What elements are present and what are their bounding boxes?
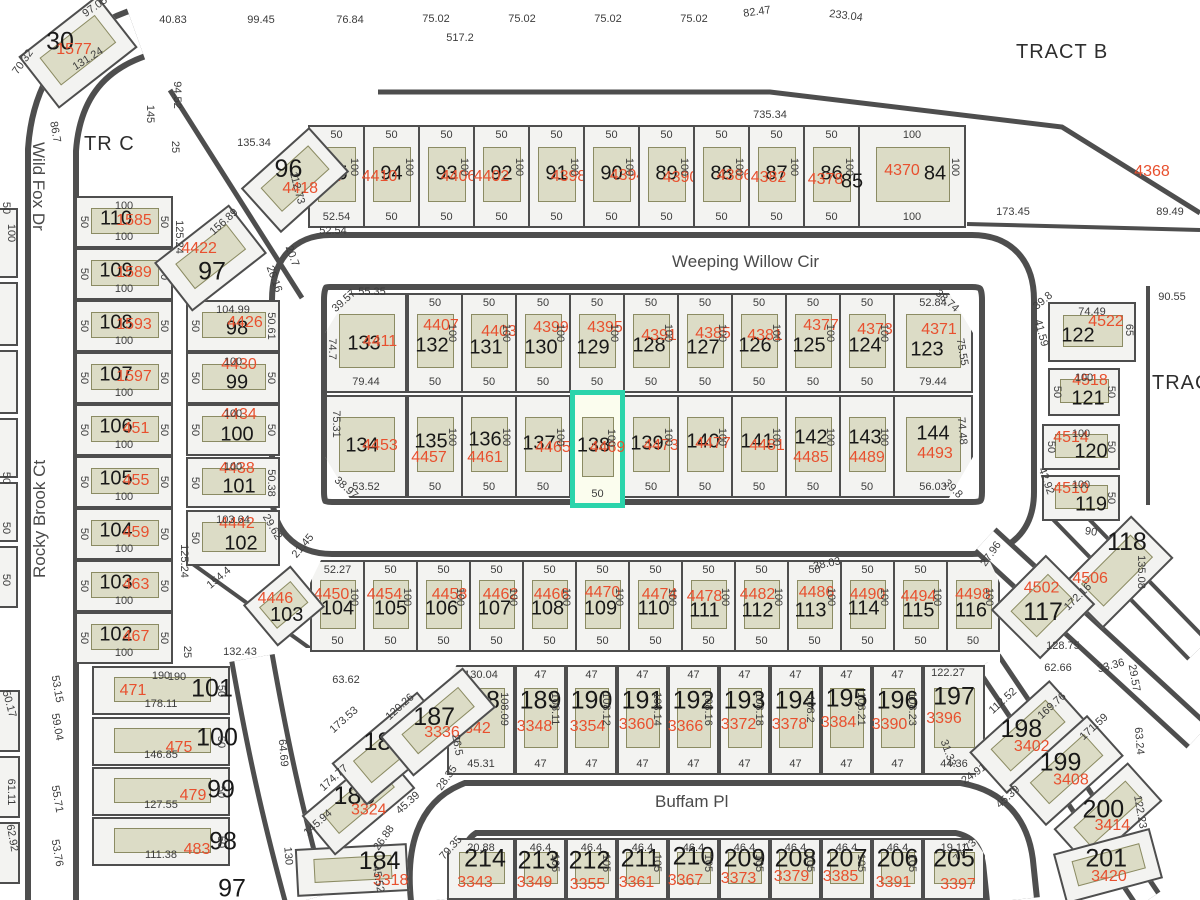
dim-label: 145 bbox=[144, 105, 156, 123]
dim-label: 125.24 bbox=[178, 544, 190, 578]
dim-label: 50 bbox=[645, 481, 657, 493]
lot-90[interactable]: 9043945050100 bbox=[583, 125, 640, 228]
dim-label: 50 bbox=[591, 488, 603, 500]
dim-label: 50 bbox=[537, 481, 549, 493]
dim-label: 46.4 bbox=[632, 842, 653, 854]
lot-number: 100 bbox=[220, 423, 253, 446]
dim-label: 100 bbox=[662, 324, 674, 342]
dim-label: 100 bbox=[1075, 372, 1093, 384]
dim-label: 105 bbox=[549, 854, 561, 872]
dim-label: 50 bbox=[189, 372, 201, 384]
map-canvas: 9544145052.54100944410505010093440650501… bbox=[0, 0, 1200, 900]
dim-label: 50 bbox=[861, 564, 873, 576]
dim-label: 50 bbox=[550, 211, 562, 223]
dim-label: 50 bbox=[490, 564, 502, 576]
dim-label: 105 bbox=[753, 854, 765, 872]
lot-129[interactable]: 12943955050100 bbox=[569, 293, 625, 393]
lot-111[interactable]: 11144785050100 bbox=[681, 560, 736, 652]
lot-98[interactable]: 98483111.3850 bbox=[92, 817, 230, 866]
dim-label: 46.4 bbox=[581, 842, 602, 854]
lot-189[interactable]: 18933484747108.11 bbox=[515, 665, 566, 775]
dim-label: 50 bbox=[385, 129, 397, 141]
lot-number: 121 bbox=[1071, 387, 1104, 410]
dim-label: 50 bbox=[660, 129, 672, 141]
dim-label: 100 bbox=[500, 324, 512, 342]
dim-label: 50 bbox=[440, 129, 452, 141]
lot-110[interactable]: 11015851001005050 bbox=[75, 196, 173, 248]
dim-label: 50 bbox=[429, 376, 441, 388]
dim-label: 86.7 bbox=[47, 120, 63, 143]
lot-89[interactable]: 8943905050100 bbox=[638, 125, 695, 228]
dim-label: 100 bbox=[458, 157, 470, 175]
dim-label: 47 bbox=[738, 758, 750, 770]
parcel-number: 3397 bbox=[940, 876, 976, 894]
dim-label: 132.43 bbox=[223, 646, 257, 658]
lot-191[interactable]: 19133604747108.14 bbox=[617, 665, 668, 775]
dim-label: 53.76 bbox=[49, 838, 66, 867]
dim-label: 47 bbox=[840, 758, 852, 770]
dim-label: 100 bbox=[825, 588, 837, 606]
dim-label: 108.11 bbox=[549, 693, 561, 726]
lot-135[interactable]: 135445750100 bbox=[407, 395, 463, 498]
dim-label: 50 bbox=[495, 129, 507, 141]
dim-label: 47 bbox=[534, 758, 546, 770]
lot-87[interactable]: 8743825050100 bbox=[748, 125, 805, 228]
dim-label: 50 bbox=[914, 564, 926, 576]
dim-label: 47 bbox=[687, 758, 699, 770]
dim-label: 25 bbox=[181, 646, 193, 658]
dim-label: 50 bbox=[0, 202, 12, 214]
lot-130[interactable]: 13043995050100 bbox=[515, 293, 571, 393]
dim-label: 100 bbox=[931, 588, 943, 606]
parcel-number: 4478 bbox=[687, 588, 723, 606]
lot-115[interactable]: 11544945050100 bbox=[893, 560, 948, 652]
dim-label: 79.44 bbox=[919, 376, 947, 388]
lot-108[interactable]: 10844665050100 bbox=[522, 560, 577, 652]
parcel-number: 4402 bbox=[474, 168, 510, 186]
dim-label: 50 bbox=[861, 376, 873, 388]
lot-131[interactable]: 13144035050100 bbox=[461, 293, 517, 393]
parcel-number: 4426 bbox=[227, 314, 263, 332]
dim-label: 105 bbox=[600, 854, 612, 872]
lot-93[interactable]: 9344065050100 bbox=[418, 125, 475, 228]
lot-109[interactable]: 10915891005050 bbox=[75, 248, 173, 300]
dim-label: 100 bbox=[454, 588, 466, 606]
dim-label: 100 bbox=[560, 588, 572, 606]
lot-107[interactable]: 10715971005050 bbox=[75, 352, 173, 404]
dim-label: 47 bbox=[636, 669, 648, 681]
dim-label: 100 bbox=[224, 408, 242, 420]
parcel-number: 1593 bbox=[116, 316, 152, 334]
lot-number: 143 bbox=[848, 426, 881, 449]
dim-label: 108.18 bbox=[753, 693, 765, 727]
dim-label: 100 bbox=[403, 157, 415, 175]
lot-sliver[interactable] bbox=[0, 208, 18, 278]
parcel-number: 3373 bbox=[721, 870, 757, 888]
lot-104[interactable]: 1044591005050 bbox=[75, 508, 173, 560]
parcel-number: 3349 bbox=[517, 874, 553, 892]
dim-label: 63.24 bbox=[1132, 727, 1146, 755]
dim-label: 50 bbox=[78, 528, 90, 540]
dim-label: 100 bbox=[608, 324, 620, 342]
lot-sliver[interactable] bbox=[0, 350, 18, 414]
lot-121[interactable]: 12145181005050 bbox=[1048, 368, 1120, 416]
lot-105[interactable]: 10544545050100 bbox=[363, 560, 418, 652]
dim-label: 75.02 bbox=[594, 13, 622, 25]
parcel-number: 4378 bbox=[808, 171, 844, 189]
dim-label: 50 bbox=[158, 580, 170, 592]
lot-140[interactable]: 140447750100 bbox=[677, 395, 733, 498]
lot-107[interactable]: 10744625050100 bbox=[469, 560, 524, 652]
dim-label: 50 bbox=[861, 635, 873, 647]
dim-label: 50 bbox=[189, 320, 201, 332]
dim-label: 154.4 bbox=[205, 565, 234, 592]
dim-label: 50 bbox=[702, 564, 714, 576]
lot-112[interactable]: 11244825050100 bbox=[734, 560, 789, 652]
dim-label: 27.96 bbox=[978, 539, 1004, 568]
parcel-number: 4410 bbox=[362, 168, 398, 186]
lot-98[interactable]: 984426104.995050.61 bbox=[186, 300, 280, 352]
dim-label: 47 bbox=[585, 669, 597, 681]
lot-119[interactable]: 119451010050 bbox=[1042, 475, 1120, 521]
lot-194[interactable]: 19433784747108.2 bbox=[770, 665, 821, 775]
dim-label: 46.4 bbox=[734, 842, 755, 854]
dim-label: 50.38 bbox=[265, 469, 277, 497]
dim-label: 50 bbox=[385, 211, 397, 223]
dim-label: 50 bbox=[490, 635, 502, 647]
lot-212[interactable]: 212335546.4105 bbox=[566, 838, 617, 900]
dim-label: 50.61 bbox=[265, 312, 277, 340]
parcel-number: 4502 bbox=[1024, 580, 1060, 598]
dim-label: 50 bbox=[78, 580, 90, 592]
dim-label: 45.39 bbox=[994, 783, 1022, 810]
lot-108[interactable]: 10815931005050 bbox=[75, 300, 173, 352]
dim-label: 105 bbox=[906, 854, 918, 872]
lot-92[interactable]: 9244025050100 bbox=[473, 125, 530, 228]
dim-label: 21.45 bbox=[290, 532, 317, 561]
lot-210[interactable]: 210336746.4105 bbox=[668, 838, 719, 900]
dim-label: 46.4 bbox=[836, 842, 857, 854]
dim-label: 50 bbox=[715, 211, 727, 223]
dim-label: 125.24 bbox=[173, 220, 185, 254]
lot-196[interactable]: 19633904747108.23 bbox=[872, 665, 923, 775]
street-label-wild-fox-dr: Wild Fox Dr bbox=[28, 142, 48, 231]
lot-114[interactable]: 11444905050100 bbox=[840, 560, 895, 652]
dim-label: 100 bbox=[1072, 479, 1090, 491]
dim-label: 40.83 bbox=[159, 14, 187, 26]
dim-label: 65 bbox=[1123, 324, 1135, 336]
dim-label: 100 bbox=[719, 588, 731, 606]
lot-137[interactable]: 137446550100 bbox=[515, 395, 571, 498]
dim-label: 50 bbox=[158, 476, 170, 488]
dim-label: 50 bbox=[596, 564, 608, 576]
dim-label: 100 bbox=[5, 224, 17, 242]
dim-label: 74.48 bbox=[955, 417, 969, 445]
lot-sliver[interactable] bbox=[0, 282, 18, 346]
lot-192[interactable]: 19233664747108.16 bbox=[668, 665, 719, 775]
dim-label: 33.36 bbox=[1096, 657, 1126, 676]
dim-label: 50 bbox=[189, 476, 201, 488]
tract-label-a: TRACT bbox=[1152, 372, 1200, 395]
dim-label: 50 bbox=[158, 216, 170, 228]
dim-label: 50 bbox=[699, 297, 711, 309]
dim-label: 100 bbox=[115, 283, 133, 295]
lot-211[interactable]: 211336146.4105 bbox=[617, 838, 668, 900]
dim-label: 735.34 bbox=[753, 109, 787, 121]
dim-label: 52.27 bbox=[324, 564, 352, 576]
lot-94[interactable]: 9444105050100 bbox=[363, 125, 420, 228]
dim-label: 100 bbox=[115, 439, 133, 451]
dim-label: 50 bbox=[702, 635, 714, 647]
dim-label: 122.27 bbox=[931, 667, 965, 679]
lot-190[interactable]: 19033544747108.12 bbox=[566, 665, 617, 775]
lot-120[interactable]: 12045141005050 bbox=[1042, 424, 1120, 470]
parcel-number: 4482 bbox=[740, 586, 776, 604]
dim-label: 50 bbox=[483, 297, 495, 309]
lot-101[interactable]: 10144381005050.38 bbox=[186, 457, 280, 508]
dim-label: 50 bbox=[158, 320, 170, 332]
parcel-number: 3414 bbox=[1094, 817, 1130, 835]
lot-206[interactable]: 206339146.4105 bbox=[872, 838, 923, 900]
dim-label: 28.35 bbox=[434, 763, 460, 792]
dim-label: 50 bbox=[1105, 441, 1117, 453]
dim-label: 50 bbox=[158, 424, 170, 436]
lot-195[interactable]: 19533844747108.21 bbox=[821, 665, 872, 775]
dim-label: 50 bbox=[1051, 386, 1063, 398]
dim-label: 100 bbox=[568, 157, 580, 175]
dim-label: 111.38 bbox=[145, 849, 177, 861]
parcel-number: 463 bbox=[123, 576, 150, 594]
parcel-number: 4493 bbox=[917, 445, 953, 463]
dim-label: 50 bbox=[0, 574, 12, 586]
dim-label: 50 bbox=[429, 481, 441, 493]
parcel-number: 4485 bbox=[793, 449, 829, 467]
dim-label: 63.62 bbox=[332, 674, 360, 686]
lot-sliver[interactable] bbox=[0, 418, 18, 478]
dim-label: 74.49 bbox=[1078, 306, 1106, 318]
lot-136[interactable]: 136446150100 bbox=[461, 395, 517, 498]
lot-207[interactable]: 207338546.4105 bbox=[821, 838, 872, 900]
dim-label: 100 bbox=[716, 427, 728, 445]
dim-label: 50 bbox=[0, 472, 12, 484]
dim-label: 26.16 bbox=[264, 264, 285, 294]
lot-99[interactable]: 99479127.5550 bbox=[92, 767, 230, 816]
dim-label: 173.53 bbox=[327, 704, 360, 735]
lot-number: 84 bbox=[924, 162, 946, 185]
lot-127[interactable]: 12743855050100 bbox=[677, 293, 733, 393]
lot-100[interactable]: 100475146.8550 bbox=[92, 717, 230, 766]
dim-label: 50 bbox=[384, 564, 396, 576]
dim-label: 100 bbox=[115, 647, 133, 659]
dim-label: 50 bbox=[78, 632, 90, 644]
lot-142[interactable]: 142448550100 bbox=[785, 395, 841, 498]
dim-label: 46.4 bbox=[785, 842, 806, 854]
parcel-number: 1597 bbox=[116, 368, 152, 386]
lot-109[interactable]: 10944705050100 bbox=[575, 560, 630, 652]
dim-label: 50 bbox=[537, 297, 549, 309]
dim-label: 45.31 bbox=[467, 758, 495, 770]
lot-193[interactable]: 19333724747108.18 bbox=[719, 665, 770, 775]
dim-label: 50 bbox=[483, 376, 495, 388]
lot-number: 85 bbox=[841, 171, 863, 194]
parcel-number: 3360 bbox=[619, 716, 655, 734]
lot-213[interactable]: 213334946.4105 bbox=[515, 838, 566, 900]
dim-label: 20.7 bbox=[283, 244, 302, 268]
dim-label: 50 bbox=[437, 635, 449, 647]
dim-label: 50 bbox=[825, 129, 837, 141]
dim-label: 100 bbox=[348, 588, 360, 606]
lot-103[interactable]: 1034631005050 bbox=[75, 560, 173, 612]
dim-label: 79.44 bbox=[352, 376, 380, 388]
lot-128[interactable]: 12843915050100 bbox=[623, 293, 679, 393]
dim-label: 100 bbox=[115, 387, 133, 399]
dim-label: 50 bbox=[605, 129, 617, 141]
dim-label: 108.21 bbox=[855, 693, 867, 727]
dim-label: 50 bbox=[645, 297, 657, 309]
parcel-number: 483 bbox=[184, 841, 211, 859]
lot-143[interactable]: 143448950100 bbox=[839, 395, 895, 498]
dim-label: 50 bbox=[861, 297, 873, 309]
dim-label: 100 bbox=[662, 427, 674, 445]
dim-label: 517.2 bbox=[446, 32, 474, 44]
dim-label: 47 bbox=[840, 669, 852, 681]
lot-113[interactable]: 11344865050100 bbox=[787, 560, 842, 652]
lot-209[interactable]: 209337346.4105 bbox=[719, 838, 770, 900]
dim-label: 50 bbox=[807, 376, 819, 388]
dim-label: 50 bbox=[330, 129, 342, 141]
lot-number: 118 bbox=[1107, 528, 1147, 557]
lot-100[interactable]: 10044341005050 bbox=[186, 404, 280, 456]
lot-number: 99 bbox=[226, 371, 248, 394]
dim-label: 100 bbox=[401, 588, 413, 606]
lot-number: 144 bbox=[916, 422, 949, 445]
lot-88[interactable]: 8843865050100 bbox=[693, 125, 750, 228]
parcel-number: 3384 bbox=[821, 714, 857, 732]
dim-label: 50 bbox=[543, 564, 555, 576]
parcel-number: 3366 bbox=[668, 718, 704, 736]
parcel-number: 467 bbox=[123, 628, 150, 646]
lot-184[interactable]: 1843318 bbox=[295, 843, 409, 897]
lot-124[interactable]: 12443735050100 bbox=[839, 293, 895, 393]
dim-label: 89.49 bbox=[1156, 206, 1184, 218]
dim-label: 64.69 bbox=[276, 739, 290, 767]
lot-110[interactable]: 11044745050100 bbox=[628, 560, 683, 652]
parcel-number: 4446 bbox=[257, 589, 293, 607]
dim-label: 108.2 bbox=[804, 696, 816, 724]
lot-number: 142 bbox=[794, 426, 827, 449]
lot-144[interactable]: 144449356.03 bbox=[893, 395, 973, 498]
lot-141[interactable]: 141448150100 bbox=[731, 395, 787, 498]
lot-138-selected[interactable]: 138446950100 bbox=[570, 390, 625, 508]
dim-label: 100 bbox=[115, 200, 133, 212]
lot-132[interactable]: 13244075050100 bbox=[407, 293, 463, 393]
parcel-number: 4371 bbox=[921, 321, 957, 339]
dim-label: 46.4 bbox=[683, 842, 704, 854]
parcel-number: 4453 bbox=[362, 437, 398, 455]
lot-101[interactable]: 101471190178.1150 bbox=[92, 666, 230, 715]
parcel-number: 1589 bbox=[116, 264, 152, 282]
lot-number: 113 bbox=[795, 600, 827, 623]
parcel-number: 3378 bbox=[772, 716, 808, 734]
dim-label: 135.08 bbox=[1135, 555, 1147, 589]
parcel-number: 3420 bbox=[1091, 868, 1127, 886]
dim-label: 55.35 bbox=[358, 286, 386, 298]
parcel-number: 3391 bbox=[876, 874, 912, 892]
dim-label: 50 bbox=[753, 481, 765, 493]
dim-label: 146.85 bbox=[144, 749, 178, 761]
dim-label: 100 bbox=[507, 588, 519, 606]
lot-91[interactable]: 9143985050100 bbox=[528, 125, 585, 228]
parcel-number: 3385 bbox=[823, 868, 859, 886]
dim-label: 50 bbox=[808, 635, 820, 647]
dim-label: 190 bbox=[168, 671, 186, 683]
dim-label: 100 bbox=[623, 157, 635, 175]
street-label-buffam-pl: Buffam Pl bbox=[655, 792, 728, 812]
parcel-number: 3355 bbox=[570, 876, 606, 894]
dim-label: 47 bbox=[687, 669, 699, 681]
dim-label: 100 bbox=[903, 129, 921, 141]
dim-label: 100 bbox=[666, 588, 678, 606]
parcel-number: 4457 bbox=[411, 449, 447, 467]
dim-label: 50 bbox=[967, 635, 979, 647]
dim-label: 47 bbox=[534, 669, 546, 681]
dim-label: 25 bbox=[169, 141, 181, 153]
lot-125[interactable]: 12543775050100 bbox=[785, 293, 841, 393]
lot-208[interactable]: 208337946.4105 bbox=[770, 838, 821, 900]
dim-label: 50 bbox=[265, 424, 277, 436]
dim-label: 76.84 bbox=[336, 14, 364, 26]
lot-116[interactable]: 116449850100 bbox=[946, 560, 1000, 652]
dim-label: 50 bbox=[429, 297, 441, 309]
dim-label: 100 bbox=[224, 356, 242, 368]
dim-label: 75.31 bbox=[330, 410, 342, 438]
dim-label: 100 bbox=[716, 324, 728, 342]
lot-126[interactable]: 12643815050100 bbox=[731, 293, 787, 393]
dim-label: 100 bbox=[878, 324, 890, 342]
lot-106[interactable]: 10644585050100 bbox=[416, 560, 471, 652]
dim-label: 29.57 bbox=[1126, 663, 1143, 692]
parcel-number: 4382 bbox=[751, 169, 787, 187]
dim-label: 100 bbox=[788, 157, 800, 175]
parcel-number: 4411 bbox=[363, 333, 397, 351]
parcel-number: 4461 bbox=[467, 449, 503, 467]
dim-label: 50 bbox=[1105, 492, 1117, 504]
dim-label: 50 bbox=[440, 211, 452, 223]
lot-106[interactable]: 1064511005050 bbox=[75, 404, 173, 456]
dim-label: 50 bbox=[861, 481, 873, 493]
lot-84[interactable]: 844370100100100 bbox=[858, 125, 966, 228]
dim-label: 100 bbox=[824, 427, 836, 445]
dim-label: 108.23 bbox=[906, 693, 918, 727]
dim-label: 173.45 bbox=[996, 206, 1030, 218]
street-label-rocky-brook-ct: Rocky Brook Ct bbox=[30, 460, 50, 578]
lot-number: 132 bbox=[415, 335, 448, 358]
dim-label: 100 bbox=[613, 588, 625, 606]
dim-label: 50 bbox=[78, 372, 90, 384]
parcel-number: 3396 bbox=[926, 710, 962, 728]
lot-102[interactable]: 1024671005050 bbox=[75, 612, 173, 664]
boundary-tract-b bbox=[967, 224, 1200, 230]
dim-label: 62.66 bbox=[1044, 662, 1072, 674]
dim-label: 50 bbox=[649, 564, 661, 576]
dim-label: 50 bbox=[78, 424, 90, 436]
lot-105[interactable]: 1054551005050 bbox=[75, 456, 173, 508]
dim-label: 100 bbox=[115, 595, 133, 607]
lot-139[interactable]: 139447350100 bbox=[623, 395, 679, 498]
dim-label: 103.64 bbox=[216, 514, 250, 526]
dim-label: 50 bbox=[158, 372, 170, 384]
lot-99[interactable]: 9944301005050 bbox=[186, 352, 280, 404]
